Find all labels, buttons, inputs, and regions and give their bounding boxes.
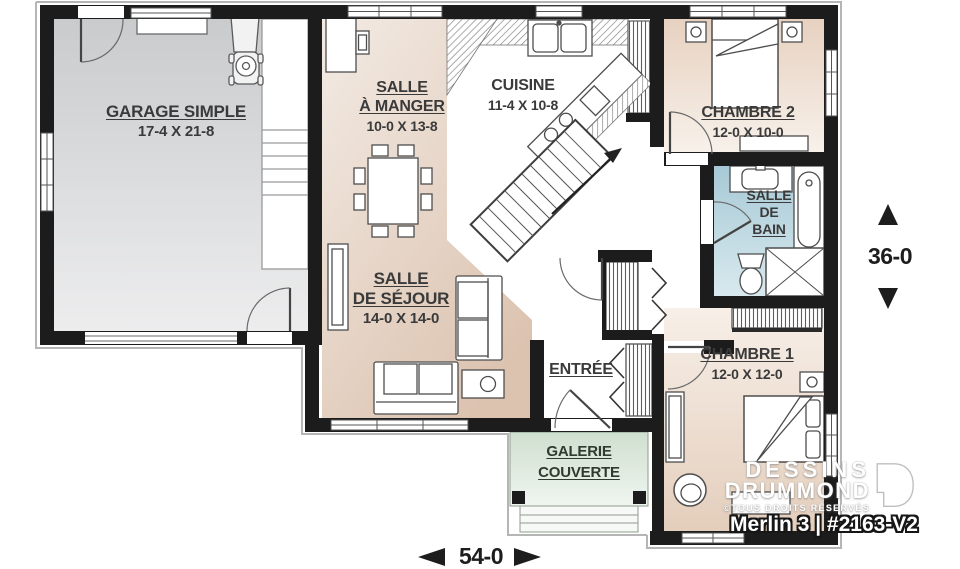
room-name: SALLE: [359, 79, 445, 98]
drummond-d-logo-icon: [868, 460, 916, 512]
wall-garage-dining: [308, 19, 322, 345]
room-name: ENTRÉE: [549, 361, 613, 380]
room-name: DE: [747, 204, 792, 221]
floor-plan-page: GARAGE SIMPLE 17-4 X 21-8 SALLE À MANGER…: [0, 0, 960, 569]
wall-closet-mid: [602, 330, 652, 340]
porch-post-left: [512, 491, 525, 504]
room-name: BAIN: [747, 221, 792, 238]
entry-closet-lower: [610, 344, 652, 416]
bedroom1-nightstand: [800, 372, 824, 392]
bedroom1-chair: [674, 474, 706, 506]
porch-steps: [520, 506, 638, 532]
living-tv-table: [462, 370, 504, 398]
shower: [766, 248, 824, 296]
living-bookcase: [328, 244, 348, 330]
wall-corridor-stub: [650, 122, 664, 147]
room-name: CHAMBRE 1: [700, 346, 793, 365]
garage-stairs: [262, 19, 308, 269]
dimension-width: 54-0: [459, 543, 503, 569]
living-sofa: [374, 362, 458, 414]
brand-name-line1: DESSINS: [723, 460, 870, 480]
room-dims: 17-4 X 21-8: [106, 123, 246, 141]
room-name: CUISINE: [488, 77, 558, 96]
bedroom2-bed: [712, 19, 778, 108]
wall-bedroom1-left: [652, 334, 664, 531]
room-name: SALLE: [353, 269, 449, 289]
bifold-door-icon: [652, 268, 666, 330]
label-garage: GARAGE SIMPLE 17-4 X 21-8: [106, 102, 246, 141]
room-name: À MANGER: [359, 98, 445, 117]
label-bedroom2: CHAMBRE 2 12-0 X 10-0: [701, 104, 794, 140]
arrow-right-icon: [514, 548, 541, 566]
brand-watermark: DESSINS DRUMMOND ©TOUS DROITS RÉSERVÉS: [723, 460, 870, 514]
arrow-down-icon: [878, 288, 898, 309]
wall-entry-left: [530, 340, 544, 418]
kitchen-sink: [528, 20, 592, 56]
label-bedroom1: CHAMBRE 1 12-0 X 12-0: [700, 346, 793, 382]
wall-entry-top: [598, 250, 652, 262]
toilet: [738, 254, 764, 294]
bedroom1-closet: [732, 308, 822, 332]
room-name: SALLE: [747, 187, 792, 204]
plan-title: Merlin 3 | #2163-V2: [730, 513, 918, 537]
dimension-depth: 36-0: [868, 243, 912, 270]
room-name: GARAGE SIMPLE: [106, 102, 246, 122]
bifold-door-icon: [610, 348, 624, 412]
bathtub: [794, 166, 824, 252]
room-dims: 11-4 X 10-8: [488, 97, 558, 114]
label-porch: GALERIE COUVERTE: [538, 441, 620, 483]
room-dims: 12-0 X 10-0: [701, 124, 794, 141]
bedroom1-bed: [744, 396, 824, 462]
bedroom1-wardrobe-inner: [669, 396, 681, 458]
porch-post-right: [633, 491, 646, 504]
room-name: CHAMBRE 2: [701, 104, 794, 123]
room-dims: 12-0 X 12-0: [700, 366, 793, 383]
label-kitchen: CUISINE 11-4 X 10-8: [488, 77, 558, 113]
arrow-left-icon: [418, 548, 445, 566]
room-name: DE SÉJOUR: [353, 289, 449, 309]
brand-name-line2: DRUMMOND: [723, 480, 870, 502]
wall-kitchen-bedroom2: [650, 19, 664, 122]
room-name: COUVERTE: [538, 462, 620, 483]
wall-bath-bedroom1: [700, 296, 838, 308]
room-dims: 14-0 X 14-0: [353, 310, 449, 328]
wall-pantry-bottom: [626, 113, 664, 122]
label-bathroom: SALLE DE BAIN: [747, 187, 792, 238]
room-name: GALERIE: [538, 441, 620, 462]
wall-living-west: [305, 345, 319, 422]
arrow-up-icon: [878, 204, 898, 225]
room-dims: 10-0 X 13-8: [359, 118, 445, 135]
label-entry: ENTRÉE: [549, 361, 613, 380]
label-dining: SALLE À MANGER 10-0 X 13-8: [359, 79, 445, 134]
label-living: SALLE DE SÉJOUR 14-0 X 14-0: [353, 269, 449, 328]
door-entry-interior: [560, 258, 602, 300]
entry-closet-upper: [606, 262, 666, 332]
living-loveseat: [456, 276, 502, 360]
